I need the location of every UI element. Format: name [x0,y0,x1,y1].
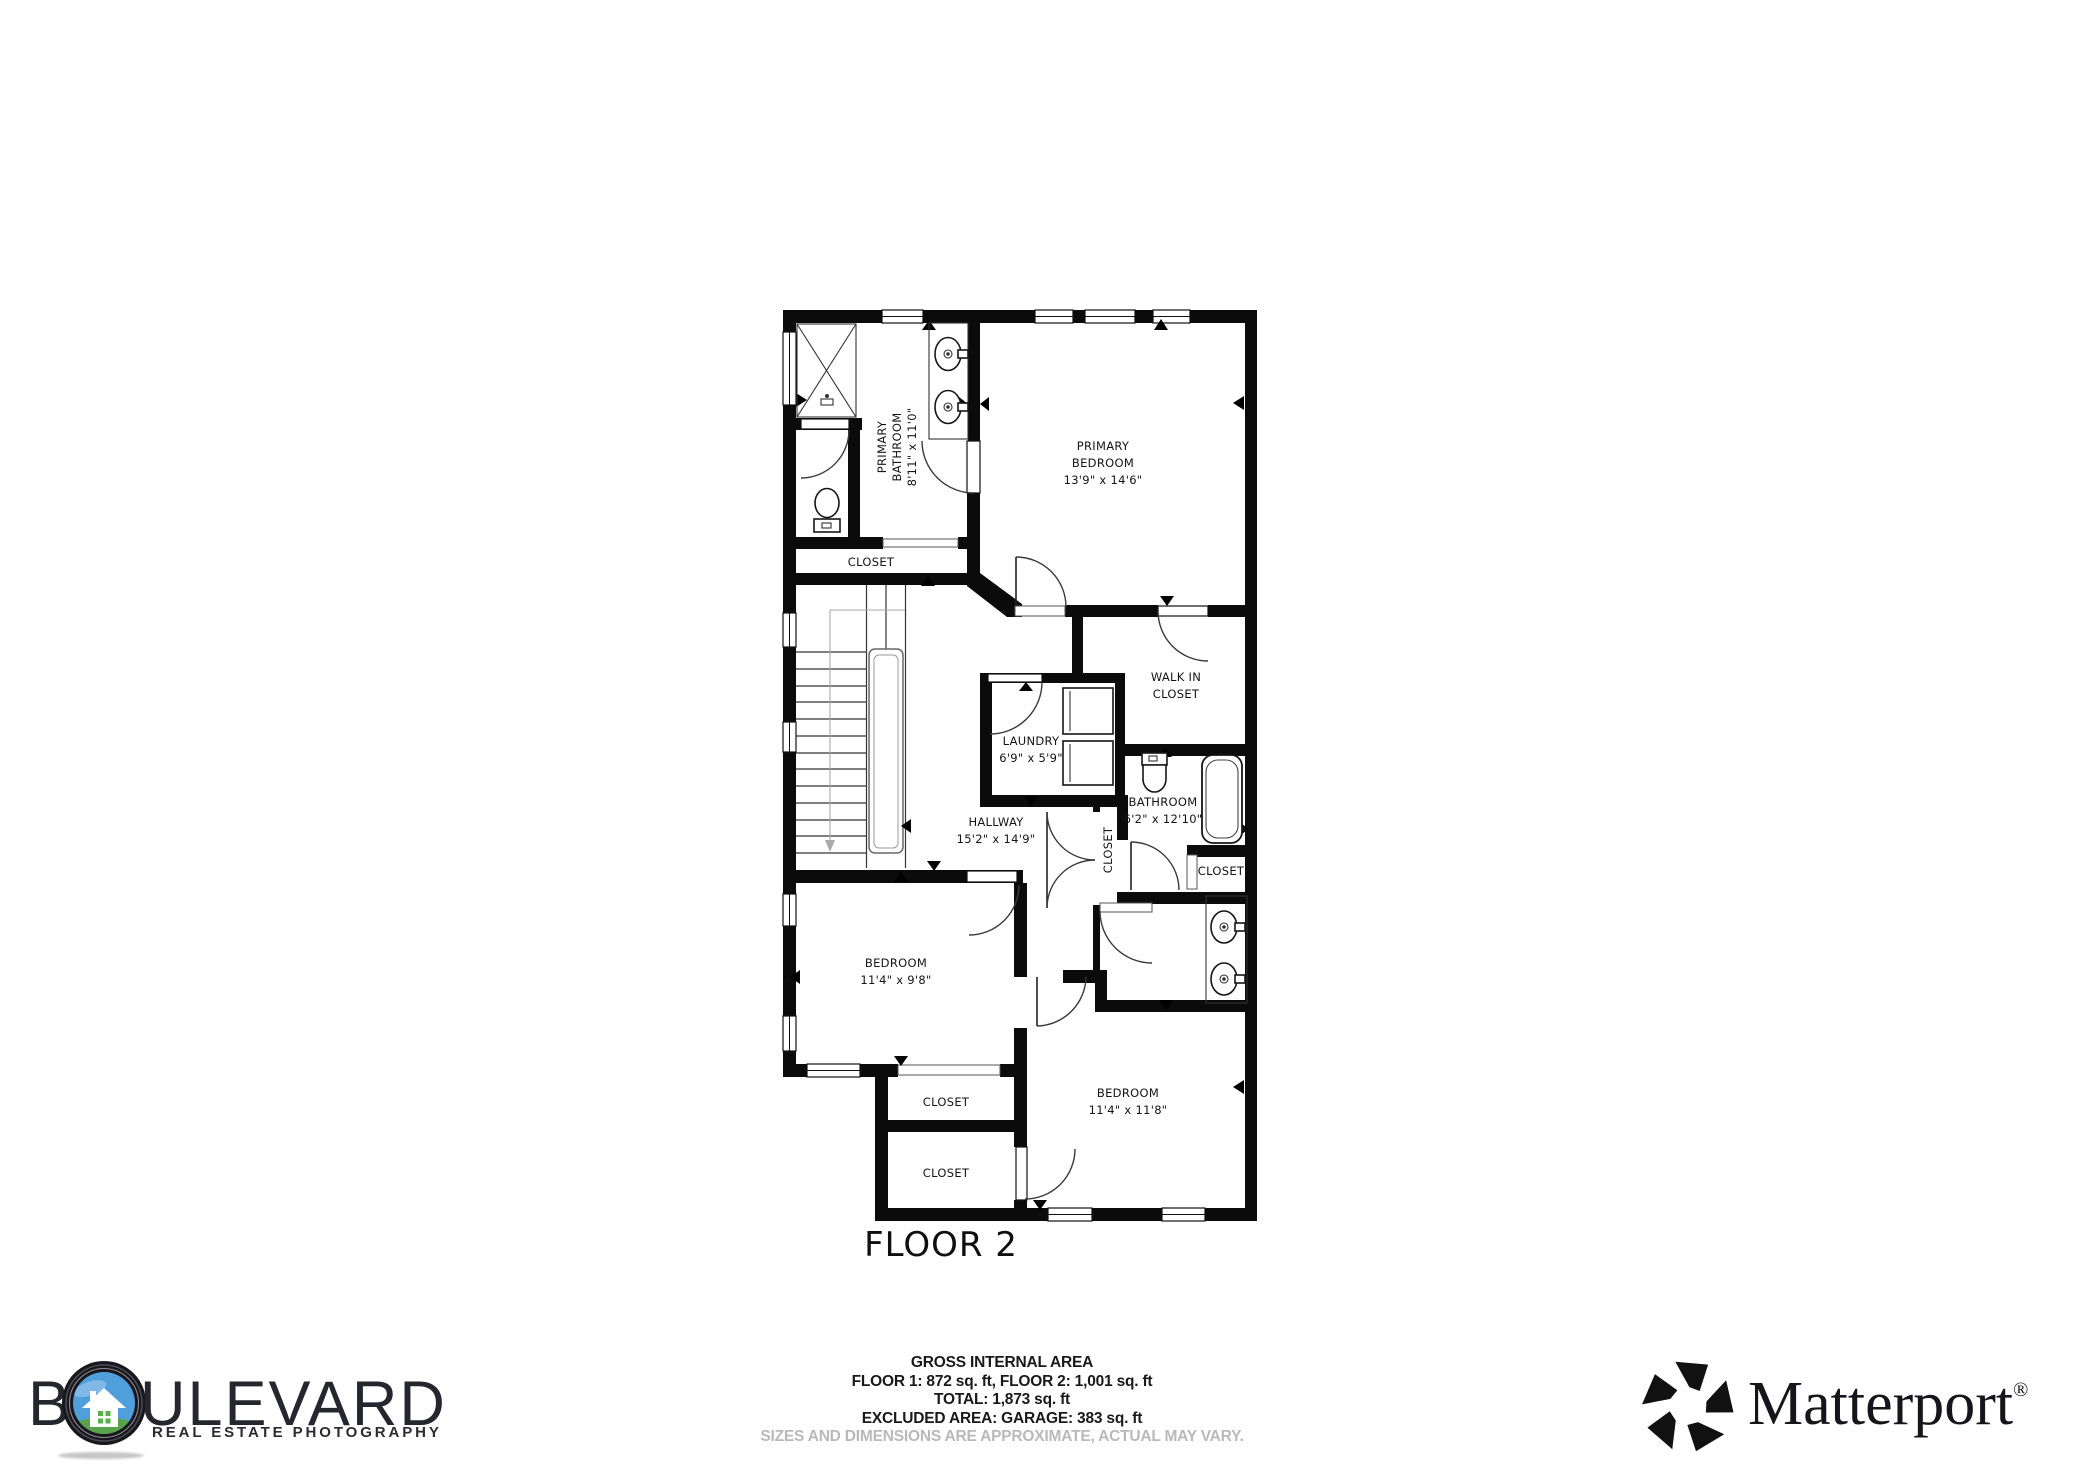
svg-text:WALK IN: WALK IN [1151,670,1201,684]
svg-text:CLOSET: CLOSET [1101,826,1115,873]
floor-areas: FLOOR 1: 872 sq. ft, FLOOR 2: 1,001 sq. … [702,1373,1302,1392]
excluded-area: EXCLUDED AREA: GARAGE: 383 sq. ft [702,1410,1302,1429]
walls [783,310,1257,1221]
svg-text:13'9" x 14'6": 13'9" x 14'6" [1064,473,1143,487]
svg-text:BEDROOM: BEDROOM [1097,1086,1159,1100]
svg-text:HALLWAY: HALLWAY [968,815,1024,829]
primary-toilet [814,489,840,533]
svg-text:BATHROOM: BATHROOM [1129,795,1198,809]
gross-area-title: GROSS INTERNAL AREA [702,1354,1302,1373]
label-laundry: LAUNDRY 6'9" x 5'9" [999,734,1063,765]
boulevard-tagline: REAL ESTATE PHOTOGRAPHY [152,1424,442,1441]
svg-text:BEDROOM: BEDROOM [865,956,927,970]
boulevard-logo: B ULEVARD REAL ESTATE PHOTOGRAPHY [28,1362,448,1467]
washer-dryer [1063,688,1113,785]
svg-text:15'2" x 14'9": 15'2" x 14'9" [957,832,1036,846]
label-closet-one: CLOSET [923,1095,970,1109]
boulevard-lens-shadow [58,1452,144,1459]
area-summary: GROSS INTERNAL AREA FLOOR 1: 872 sq. ft,… [702,1354,1302,1447]
disclaimer: SIZES AND DIMENSIONS ARE APPROXIMATE, AC… [702,1428,1302,1447]
total-area: TOTAL: 1,873 sq. ft [702,1391,1302,1410]
bathroom-vanity-sinks [1206,896,1247,1003]
label-closet-bathroom: CLOSET [1198,864,1245,878]
primary-vanity-sinks [929,323,968,439]
floorplan-page: PRIMARY BATHROOM 8'11" x 11'0" PRIMARY B… [0,0,2080,1471]
matterport-wordmark: Matterport® [1748,1369,2028,1440]
registered-mark: ® [2013,1379,2028,1401]
bathtub [1202,755,1242,843]
matterport-icon [1638,1356,1738,1456]
staircase [796,585,906,868]
label-primary-bathroom: PRIMARY BATHROOM 8'11" x 11'0" [875,408,919,487]
matterport-name: Matterport [1748,1370,2013,1438]
boulevard-lens-icon [59,1358,149,1448]
room-dims: 8'11" x 11'0" [905,408,919,487]
svg-text:6'2" x 12'10": 6'2" x 12'10" [1124,812,1203,826]
room-name: BATHROOM [890,413,904,482]
label-closet-primary: CLOSET [848,555,895,569]
label-hallway: HALLWAY 15'2" x 14'9" [957,815,1036,846]
svg-text:CLOSET: CLOSET [1153,687,1200,701]
label-closet-two: CLOSET [923,1166,970,1180]
label-bedroom-right: BEDROOM 11'4" x 11'8" [1089,1086,1168,1117]
bathroom-toilet [1142,753,1167,792]
label-bathroom: BATHROOM 6'2" x 12'10" [1124,795,1203,826]
label-primary-bedroom: PRIMARY BEDROOM 13'9" x 14'6" [1064,439,1143,487]
floorplan-drawing: PRIMARY BATHROOM 8'11" x 11'0" PRIMARY B… [760,300,1280,1270]
label-walk-in-closet: WALK IN CLOSET [1151,670,1201,701]
svg-text:11'4" x 9'8": 11'4" x 9'8" [860,973,931,987]
svg-text:BEDROOM: BEDROOM [1072,456,1134,470]
svg-text:11'4" x 11'8": 11'4" x 11'8" [1089,1103,1168,1117]
floor-title: FLOOR 2 [864,1225,1018,1265]
label-closet-hallway: CLOSET [1101,826,1115,873]
svg-text:LAUNDRY: LAUNDRY [1003,734,1060,748]
svg-text:6'9" x 5'9": 6'9" x 5'9" [999,751,1063,765]
svg-text:PRIMARY: PRIMARY [1077,439,1130,453]
door-slabs [801,419,1208,1200]
label-bedroom-left: BEDROOM 11'4" x 9'8" [860,956,931,987]
shower [797,324,856,417]
room-name: PRIMARY [875,420,889,473]
